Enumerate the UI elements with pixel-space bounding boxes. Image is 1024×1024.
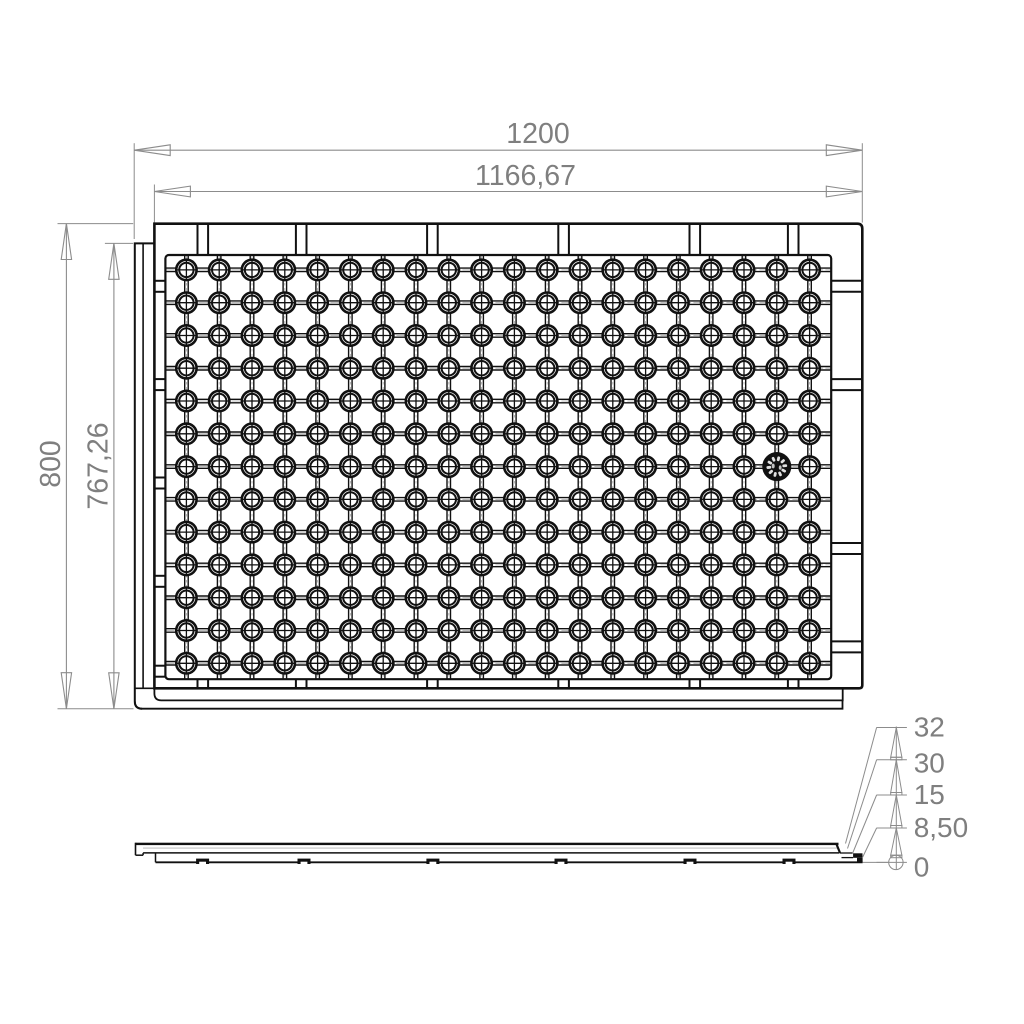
svg-text:15: 15 [914, 779, 945, 810]
svg-text:767,26: 767,26 [83, 422, 115, 509]
svg-text:1200: 1200 [506, 118, 569, 150]
svg-text:32: 32 [914, 711, 945, 742]
svg-text:1166,67: 1166,67 [475, 160, 576, 192]
svg-text:8,50: 8,50 [914, 812, 969, 843]
svg-text:800: 800 [35, 440, 67, 488]
svg-text:0: 0 [914, 851, 930, 882]
svg-text:30: 30 [914, 747, 945, 778]
